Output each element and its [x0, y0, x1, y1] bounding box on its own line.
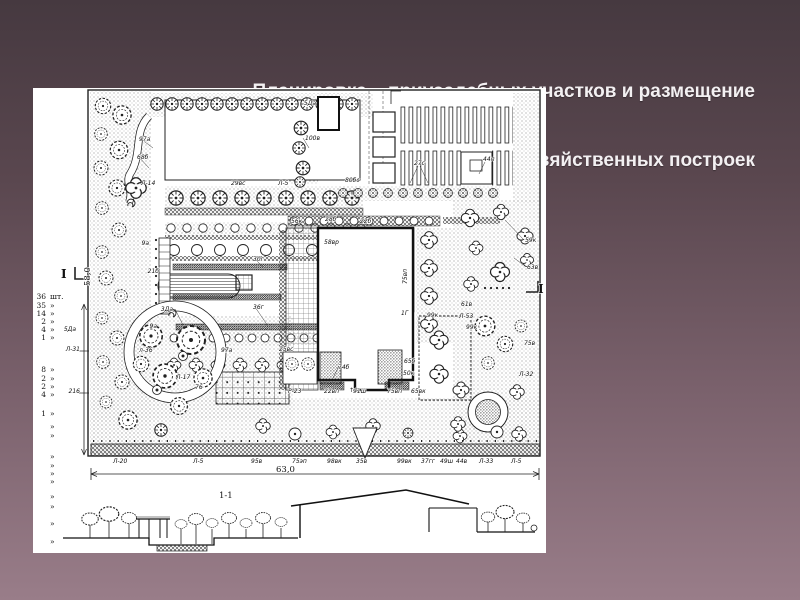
plan-label: 49ш: [440, 458, 454, 465]
legend-quantities: 36шт.35»14»2»4»1»8»2»2»4»1»»»»»»»»»»»: [36, 292, 63, 546]
plan-label: 1Г: [401, 310, 409, 317]
plan-label: 36г: [253, 304, 265, 311]
plan-figure: 36шт.35»14»2»4»1»8»2»2»4»1»»»»»»»»»»» 5Д…: [33, 88, 546, 553]
legend-count: 1: [41, 409, 46, 418]
section-pergola: [136, 517, 170, 538]
legend-unit: »: [50, 431, 55, 440]
plan-label: 75в: [524, 340, 536, 347]
plan-label: 74б: [338, 364, 350, 371]
plan-label: 75вп: [402, 269, 409, 284]
plan-label: 22б: [360, 218, 372, 225]
plan-label: 27с: [414, 160, 426, 167]
legend-unit: шт.: [50, 292, 64, 301]
plan-label: 98вк: [327, 458, 342, 465]
plan-label: Л-5: [277, 180, 289, 187]
plan-label: 99вк: [397, 458, 412, 465]
section-house-mask: [296, 490, 467, 532]
legend-unit: »: [50, 519, 55, 528]
plan-label: 100в: [305, 135, 320, 142]
plan-label: 35в: [356, 458, 368, 465]
plan-label: 28б: [325, 216, 337, 223]
plan-label: 91ш: [353, 388, 367, 395]
legend-count: 4: [41, 390, 46, 399]
plan-label: 58,0: [83, 267, 93, 286]
section-drawing: [63, 490, 537, 551]
legend-unit: »: [50, 452, 55, 461]
plan-label: I: [538, 282, 544, 296]
plan-label: 97а: [139, 136, 151, 143]
legend-count: 1: [41, 333, 46, 342]
plan-label: 44п: [483, 156, 495, 163]
plan-label: Л-32: [518, 371, 533, 378]
legend-unit: »: [50, 477, 55, 486]
plan-label: 99к: [466, 324, 478, 331]
legend-unit: »: [50, 422, 55, 431]
plan-label: Л-14: [140, 180, 155, 187]
plan-label: 99к: [427, 312, 439, 319]
plan-label: Л-53: [458, 313, 473, 320]
plan-label: 75вп: [387, 388, 402, 395]
vegetable-beds: [373, 106, 513, 186]
plan-label: Л-31: [65, 346, 80, 353]
plan-label: 65вк: [411, 388, 426, 395]
plan-label: 56к: [291, 218, 303, 225]
legend-unit: »: [50, 537, 55, 546]
plan-label: 59к: [525, 237, 537, 244]
legend-unit: »: [50, 409, 55, 418]
plan-label: 25вс: [279, 346, 294, 353]
plan-label: 75эп: [292, 458, 307, 465]
plan-label: 30г: [253, 256, 265, 263]
plan-label: 68б: [137, 154, 149, 161]
plan-label: Л-33: [478, 458, 493, 465]
plan-label: 37гг: [421, 458, 436, 465]
plan-label: 97а: [221, 347, 233, 354]
well: [236, 275, 252, 290]
legend-unit: »: [50, 502, 55, 511]
legend-unit: »: [50, 333, 55, 342]
plan-label: 5Да: [64, 326, 77, 333]
plan-label: 1-1: [219, 491, 233, 501]
pergola: [216, 372, 289, 404]
plan-label: 44в: [456, 458, 468, 465]
plan-label: 50к: [403, 370, 415, 377]
plan-label: 80бс: [345, 177, 360, 184]
legend-unit: »: [50, 390, 55, 399]
plan-label: Л-5: [192, 458, 204, 465]
plan-label: Л-20: [112, 458, 127, 465]
plan-label: 216: [69, 388, 81, 395]
plan-label: 63,0: [276, 465, 295, 475]
plan-label: 9а: [150, 323, 158, 330]
plan-label: Л-17: [175, 374, 190, 381]
front-hedge-band: [91, 444, 540, 456]
plan-label: 29вс: [231, 180, 246, 187]
plan-label: 9а: [142, 240, 150, 247]
plan-label: 61в: [461, 301, 473, 308]
plan-label: 58вр: [324, 239, 339, 246]
plan-label: Л-5: [510, 458, 522, 465]
plan-label: 76: [195, 384, 203, 391]
plan-label: 21б: [148, 268, 160, 275]
plan-label: 65б: [404, 358, 416, 365]
plan-label: 95в: [251, 458, 263, 465]
plan-label: л-36: [138, 347, 153, 354]
legend-unit: »: [50, 365, 55, 374]
site-plan-svg: 36шт.35»14»2»4»1»8»2»2»4»1»»»»»»»»»»» 5Д…: [33, 88, 546, 553]
legend-unit: »: [50, 492, 55, 501]
plan-label: Р-23: [288, 388, 302, 395]
plan-label: 63в: [527, 264, 539, 271]
plan-label: I: [61, 267, 67, 281]
plan-label: 3Да: [161, 306, 174, 313]
plan-label: 22вп: [324, 388, 339, 395]
legend-count: 36: [36, 292, 46, 301]
plan-label: 5Да: [304, 100, 317, 107]
legend-count: 8: [41, 365, 46, 374]
